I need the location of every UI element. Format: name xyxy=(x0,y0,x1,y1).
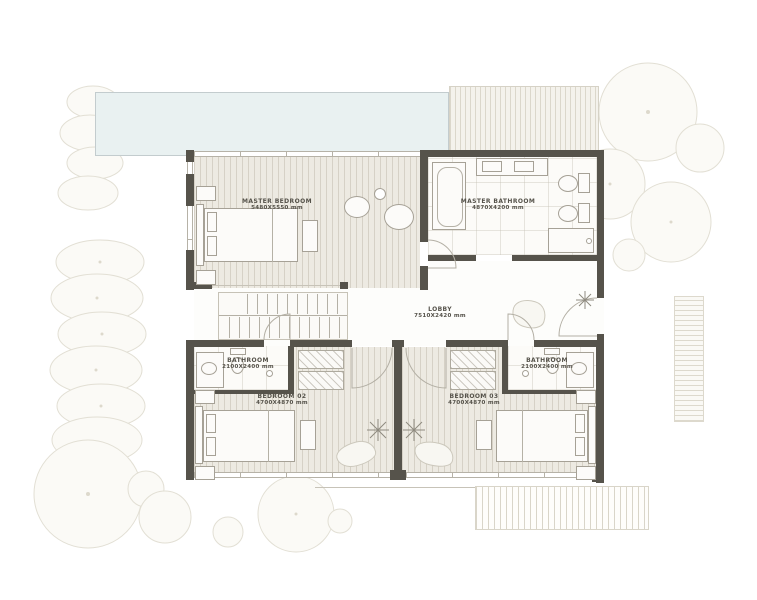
room-label-master-bathroom: MASTER BATHROOM 4870X4200 mm xyxy=(461,198,536,212)
master-bed xyxy=(204,208,298,262)
stair-edge-line xyxy=(212,285,346,286)
bed-headboard xyxy=(195,406,203,464)
nightstand xyxy=(195,466,215,480)
wall-segment xyxy=(186,150,194,162)
sink xyxy=(482,161,502,172)
toilet-tank xyxy=(230,348,246,355)
wall-segment xyxy=(186,340,264,347)
room-dimensions: 5480X5550 mm xyxy=(242,205,312,212)
blanket-fold-line xyxy=(272,208,273,262)
toilet-tank xyxy=(578,203,590,223)
lower-terrace xyxy=(475,486,649,530)
timber-deck xyxy=(449,86,599,156)
wall-segment xyxy=(290,340,352,347)
wall-segment xyxy=(420,150,428,242)
bed-headboard xyxy=(588,406,596,464)
sink xyxy=(514,161,534,172)
blanket-fold-line xyxy=(268,410,269,462)
wall-segment xyxy=(394,347,402,470)
wardrobe-closet xyxy=(450,371,496,390)
room-name: LOBBY xyxy=(414,306,466,313)
nightstand xyxy=(196,186,216,201)
wall-segment xyxy=(420,150,604,157)
window xyxy=(194,472,390,478)
wall-segment xyxy=(446,340,508,347)
room-dimensions: 4700X4870 mm xyxy=(448,400,500,407)
path-edge-line xyxy=(315,487,477,488)
side-table xyxy=(374,188,386,200)
nightstand xyxy=(576,466,596,480)
bed xyxy=(203,410,295,462)
room-dimensions: 2100X2400 mm xyxy=(222,364,274,371)
floor-plan: MASTER BEDROOM 5480X5550 mm MASTER BATHR… xyxy=(0,0,757,600)
hedge-strip xyxy=(674,296,704,422)
room-dimensions: 4700X4870 mm xyxy=(256,400,308,407)
blanket-fold-line xyxy=(522,410,523,462)
toilet-bowl xyxy=(558,175,578,192)
lobby-floor xyxy=(428,261,597,288)
room-label-bathroom-left: BATHROOM 2100X2400 mm xyxy=(222,357,274,371)
stair-divider xyxy=(219,315,347,316)
lounge-pouf xyxy=(384,204,414,230)
nightstand xyxy=(576,390,596,404)
bathtub xyxy=(432,162,466,230)
wall-segment xyxy=(186,174,194,206)
wall-segment xyxy=(534,340,604,347)
room-dimensions: 4870X4200 mm xyxy=(461,205,536,212)
wall-segment xyxy=(288,346,294,392)
shower-drain xyxy=(522,370,529,377)
bed-ottoman xyxy=(300,420,316,450)
wall-segment xyxy=(392,340,404,347)
room-name: BATHROOM xyxy=(521,357,573,364)
room-name: BATHROOM xyxy=(222,357,274,364)
shower-drain xyxy=(266,370,273,377)
room-label-lobby: LOBBY 7510X2420 mm xyxy=(414,306,466,320)
wall-segment xyxy=(502,346,508,392)
stair-treads-upper xyxy=(247,294,346,314)
toilet-bowl xyxy=(558,205,578,222)
bathtub-inner xyxy=(437,167,463,227)
room-label-bedroom-03: BEDROOM 03 4700X4870 mm xyxy=(448,393,500,407)
room-dimensions: 2100X2400 mm xyxy=(521,364,573,371)
room-name: MASTER BEDROOM xyxy=(242,198,312,205)
lounge-pouf xyxy=(344,196,370,218)
room-label-bathroom-right: BATHROOM 2100X2400 mm xyxy=(521,357,573,371)
pillow xyxy=(207,212,217,232)
sink xyxy=(201,362,217,375)
room-label-bedroom-02: BEDROOM 02 4700X4870 mm xyxy=(256,393,308,407)
wall-segment xyxy=(597,150,604,260)
wall-segment xyxy=(597,261,604,298)
pillow xyxy=(575,414,585,433)
nightstand xyxy=(195,390,215,404)
toilet-tank xyxy=(544,348,560,355)
wardrobe-closet xyxy=(450,350,496,369)
window xyxy=(194,151,420,157)
toilet-tank xyxy=(578,173,590,193)
room-dimensions: 7510X2420 mm xyxy=(414,313,466,320)
bed-ottoman xyxy=(476,420,492,450)
wall-segment xyxy=(596,347,604,483)
window xyxy=(406,472,592,478)
bed-headboard xyxy=(196,204,204,266)
staircase xyxy=(218,292,348,340)
shower-drain xyxy=(586,238,592,244)
wardrobe-closet xyxy=(298,350,344,369)
wardrobe-closet xyxy=(298,371,344,390)
pillow xyxy=(206,437,216,456)
nightstand xyxy=(196,270,216,285)
room-label-master-bedroom: MASTER BEDROOM 5480X5550 mm xyxy=(242,198,312,212)
wall-segment xyxy=(340,282,348,289)
room-name: BEDROOM 03 xyxy=(448,393,500,400)
wall-segment xyxy=(420,266,428,290)
bed-bench xyxy=(302,220,318,252)
pillow xyxy=(575,437,585,456)
wall-segment xyxy=(186,347,194,480)
room-name: MASTER BATHROOM xyxy=(461,198,536,205)
swimming-pool xyxy=(95,92,449,156)
wall-segment xyxy=(428,255,476,261)
stair-treads-lower xyxy=(229,317,346,338)
wall-segment xyxy=(390,470,406,480)
pillow xyxy=(207,236,217,256)
pillow xyxy=(206,414,216,433)
sink xyxy=(571,362,587,375)
room-name: BEDROOM 02 xyxy=(256,393,308,400)
wall-segment xyxy=(512,255,604,261)
